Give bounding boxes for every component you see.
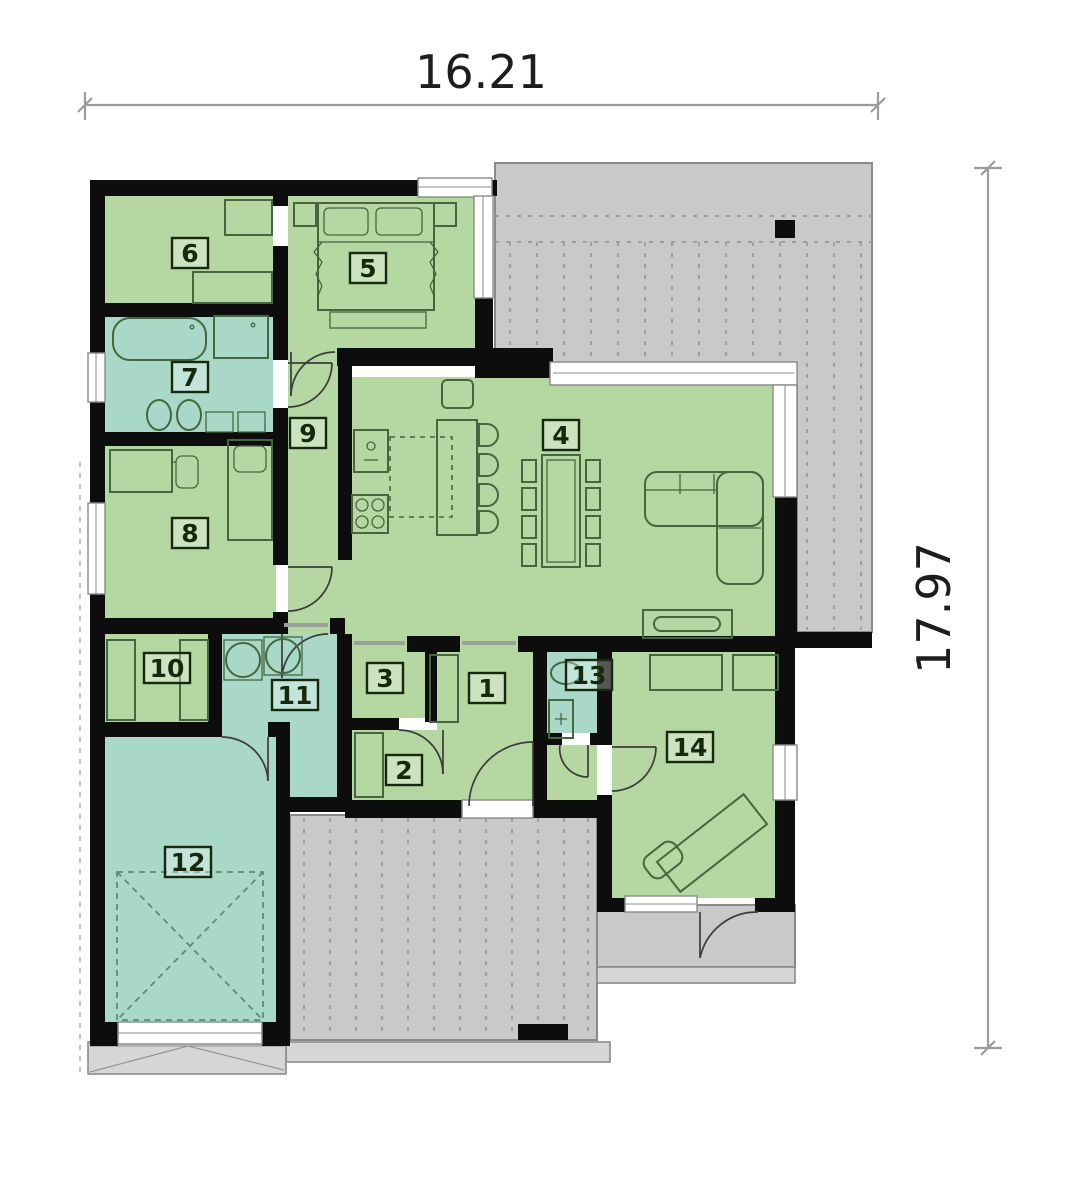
room-label-13: 13 [566, 660, 612, 690]
room-label-2: 2 [386, 755, 422, 785]
room-label-14: 14 [667, 732, 713, 762]
room-label-7: 7 [172, 362, 208, 392]
dimension-height-label: 17.97 [907, 542, 961, 674]
window-room5-right [474, 196, 493, 298]
window-room8-left [88, 503, 105, 594]
room-12-floor [105, 737, 276, 1022]
dimension-top: 16.21 [78, 45, 885, 120]
svg-text:12: 12 [171, 848, 206, 877]
svg-text:10: 10 [150, 654, 185, 683]
floor-plan-page: 1 2 3 4 5 6 7 8 9 10 11 12 13 14 16.21 1… [0, 0, 1087, 1200]
svg-text:6: 6 [181, 239, 198, 268]
garage-door [118, 1022, 262, 1044]
room-label-3: 3 [367, 663, 403, 693]
svg-text:9: 9 [299, 419, 316, 448]
window-room14-right [773, 745, 797, 800]
svg-text:3: 3 [376, 664, 393, 693]
room-label-10: 10 [144, 653, 190, 683]
svg-text:7: 7 [181, 363, 198, 392]
room-label-4: 4 [543, 420, 579, 450]
svg-text:14: 14 [673, 733, 708, 762]
window-room5-top [418, 178, 492, 197]
room-label-8: 8 [172, 518, 208, 548]
svg-text:11: 11 [278, 681, 313, 710]
room-label-6: 6 [172, 238, 208, 268]
svg-text:5: 5 [359, 254, 376, 283]
room-label-5: 5 [350, 253, 386, 283]
dimension-right: 17.97 [907, 161, 1002, 1055]
room-14-floor [612, 652, 775, 898]
window-bathroom-left [88, 353, 105, 402]
porch-bottom-right [597, 905, 795, 983]
svg-text:4: 4 [552, 421, 569, 450]
room-label-12: 12 [165, 847, 211, 877]
terrace-bottom [290, 815, 597, 1040]
entry-door-opening [462, 800, 533, 818]
svg-text:8: 8 [181, 519, 198, 548]
svg-text:13: 13 [572, 661, 607, 690]
svg-text:1: 1 [478, 674, 495, 703]
bottom-step-and-driveway [88, 1042, 610, 1074]
dimension-width-label: 16.21 [415, 45, 547, 99]
floor-plan-drawing: 1 2 3 4 5 6 7 8 9 10 11 12 13 14 16.21 1… [0, 0, 1087, 1200]
svg-text:2: 2 [395, 756, 412, 785]
room-label-9: 9 [290, 418, 326, 448]
room-label-11: 11 [272, 680, 318, 710]
window-room14-bottom [625, 896, 697, 912]
room-label-1: 1 [469, 673, 505, 703]
